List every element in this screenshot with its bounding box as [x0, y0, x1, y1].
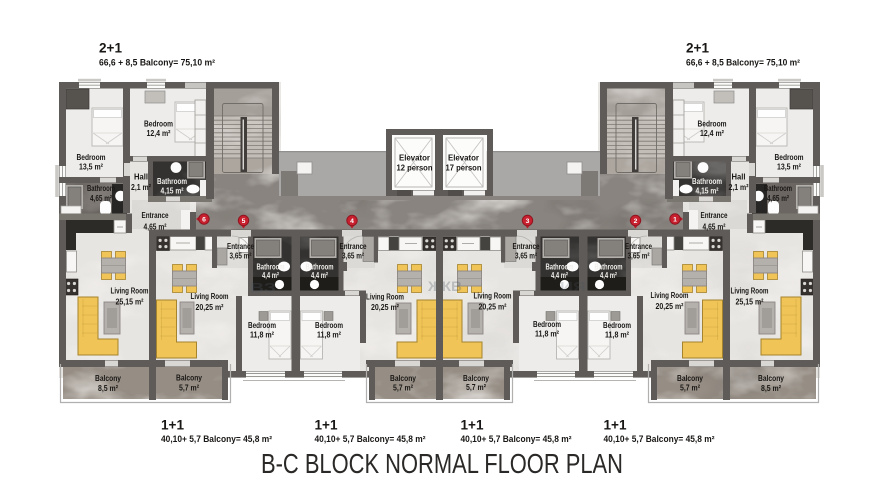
svg-text:5,7 m²: 5,7 m² [466, 382, 486, 392]
svg-text:3,65 m²: 3,65 m² [628, 251, 650, 261]
svg-text:3,65 m²: 3,65 m² [342, 251, 364, 261]
svg-text:4,15 m²: 4,15 m² [696, 186, 719, 196]
svg-text:Living Room: Living Room [731, 286, 769, 296]
svg-text:4,65 m²: 4,65 m² [767, 193, 789, 203]
svg-text:Hall: Hall [134, 172, 148, 182]
svg-text:Entrance: Entrance [227, 241, 254, 251]
svg-text:25,15 m²: 25,15 m² [116, 297, 144, 307]
svg-text:Balcony: Balcony [677, 373, 703, 383]
svg-text:Bedroom: Bedroom [315, 320, 343, 330]
svg-text:2+1: 2+1 [686, 40, 709, 56]
svg-text:Bedroom: Bedroom [698, 119, 727, 129]
svg-text:Hall: Hall [732, 172, 746, 182]
svg-text:13,5 m²: 13,5 m² [79, 162, 103, 172]
svg-text:Entrance: Entrance [142, 210, 169, 220]
svg-text:4,4 m²: 4,4 m² [311, 270, 328, 280]
svg-text:Bedroom: Bedroom [77, 152, 106, 162]
svg-text:Living Room: Living Room [366, 292, 404, 302]
svg-text:5,7 m²: 5,7 m² [179, 383, 199, 393]
svg-text:Balcony: Balcony [390, 373, 416, 383]
svg-text:6: 6 [202, 217, 206, 224]
svg-text:Balcony: Balcony [758, 373, 784, 383]
svg-text:Entrance: Entrance [701, 210, 728, 220]
svg-text:25,15 m²: 25,15 m² [736, 297, 764, 307]
svg-text:Bedroom: Bedroom [533, 319, 561, 329]
svg-text:12,4 m²: 12,4 m² [147, 128, 171, 138]
svg-text:11,8 m²: 11,8 m² [317, 330, 341, 340]
svg-text:Bathroom: Bathroom [87, 183, 115, 193]
svg-text:Living Room: Living Room [474, 291, 512, 301]
svg-text:4,65 m²: 4,65 m² [144, 222, 167, 232]
svg-text:Bathroom: Bathroom [692, 176, 722, 186]
svg-text:4,65 m²: 4,65 m² [703, 222, 726, 232]
svg-text:Living Room: Living Room [191, 291, 229, 301]
svg-text:40,10+ 5,7 Balcony= 45,8 m²: 40,10+ 5,7 Balcony= 45,8 m² [604, 434, 715, 444]
svg-text:20,25 m²: 20,25 m² [371, 302, 399, 312]
svg-text:Bedroom: Bedroom [248, 320, 276, 330]
svg-text:ВЗ: ВЗ [250, 280, 276, 295]
svg-text:Elevator: Elevator [399, 153, 431, 163]
svg-text:4,4 m²: 4,4 m² [262, 270, 279, 280]
svg-text:Entrance: Entrance [513, 241, 540, 251]
svg-text:20,25 m²: 20,25 m² [479, 302, 507, 312]
svg-text:20,25 m²: 20,25 m² [196, 302, 224, 312]
svg-text:5,7 m²: 5,7 m² [680, 383, 700, 393]
svg-text:2,1 m²: 2,1 m² [131, 182, 151, 192]
svg-text:13,5 m²: 13,5 m² [777, 162, 801, 172]
svg-text:40,10+ 5,7 Balcony= 45,8 m²: 40,10+ 5,7 Balcony= 45,8 m² [161, 434, 272, 444]
svg-text:Bedroom: Bedroom [144, 119, 173, 129]
svg-text:2+1: 2+1 [99, 40, 122, 56]
svg-text:12 person: 12 person [397, 163, 433, 173]
svg-text:12,4 m²: 12,4 m² [700, 128, 724, 138]
svg-text:1+1: 1+1 [604, 417, 627, 433]
svg-text:66,6 + 8,5 Balcony= 75,10 m²: 66,6 + 8,5 Balcony= 75,10 m² [686, 58, 800, 68]
svg-text:4,65 m²: 4,65 m² [90, 193, 112, 203]
svg-text:B-C BLOCK NORMAL FLOOR PLAN: B-C BLOCK NORMAL FLOOR PLAN [261, 448, 623, 479]
svg-text:5,7 m²: 5,7 m² [393, 383, 413, 393]
svg-text:4,4 m²: 4,4 m² [600, 270, 617, 280]
svg-text:1+1: 1+1 [315, 417, 338, 433]
svg-text:Balcony: Balcony [95, 373, 121, 383]
svg-text:40,10+ 5,7 Balcony= 45,8 m²: 40,10+ 5,7 Balcony= 45,8 m² [461, 434, 572, 444]
svg-text:66,6 + 8,5 Balcony= 75,10 m²: 66,6 + 8,5 Balcony= 75,10 m² [99, 58, 215, 68]
svg-text:40,10+ 5,7 Balcony= 45,8 m²: 40,10+ 5,7 Balcony= 45,8 m² [315, 434, 426, 444]
svg-text:1: 1 [673, 217, 677, 224]
svg-text:4,4 m²: 4,4 m² [551, 270, 568, 280]
svg-text:11,8 m²: 11,8 m² [605, 330, 629, 340]
svg-text:8,5 m²: 8,5 m² [98, 383, 118, 393]
svg-text:Balcony: Balcony [176, 373, 202, 383]
svg-text:2: 2 [634, 218, 638, 225]
svg-text:Bedroom: Bedroom [775, 152, 804, 162]
svg-text:ЖКВ: ЖКВ [427, 278, 462, 294]
svg-text:8,5 m²: 8,5 m² [761, 383, 781, 393]
svg-text:Bathroom: Bathroom [764, 183, 792, 193]
svg-text:3,65 m²: 3,65 m² [515, 251, 537, 261]
svg-text:3,65 m²: 3,65 m² [230, 251, 252, 261]
svg-text:4: 4 [350, 218, 354, 225]
svg-text:Entrance: Entrance [340, 241, 367, 251]
svg-text:Entrance: Entrance [625, 241, 652, 251]
svg-text:2,1 m²: 2,1 m² [729, 182, 749, 192]
svg-text:Living Room: Living Room [111, 286, 149, 296]
svg-text:Elevator: Elevator [448, 153, 480, 163]
svg-text:5: 5 [242, 218, 246, 225]
svg-text:3: 3 [526, 218, 530, 225]
svg-text:17 person: 17 person [446, 163, 482, 173]
svg-text:11,8 m²: 11,8 m² [250, 330, 274, 340]
svg-text:Bedroom: Bedroom [603, 320, 631, 330]
svg-text:Living Room: Living Room [651, 290, 689, 300]
svg-text:ИЯ: ИЯ [560, 279, 586, 294]
svg-text:11,8 m²: 11,8 m² [535, 329, 559, 339]
svg-text:4,15 m²: 4,15 m² [161, 186, 184, 196]
svg-text:1+1: 1+1 [161, 417, 184, 433]
svg-text:1+1: 1+1 [461, 417, 484, 433]
svg-text:20,25 m²: 20,25 m² [656, 301, 684, 311]
svg-text:Bathroom: Bathroom [157, 176, 187, 186]
